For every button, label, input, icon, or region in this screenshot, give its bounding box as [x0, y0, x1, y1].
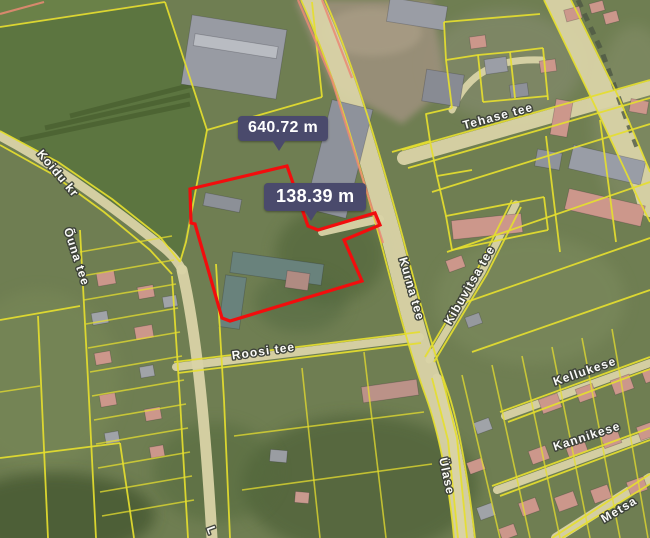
measurement-segment-length-badge: 138.39 m: [264, 183, 366, 211]
terrain-layer: [0, 0, 650, 538]
measurement-total-length-badge: 640.72 m: [238, 116, 328, 141]
satellite-map[interactable]: Koidu kr Õuna tee Tehase tee Kurna tee K…: [0, 0, 650, 538]
map-viewport[interactable]: Koidu kr Õuna tee Tehase tee Kurna tee K…: [0, 0, 650, 538]
